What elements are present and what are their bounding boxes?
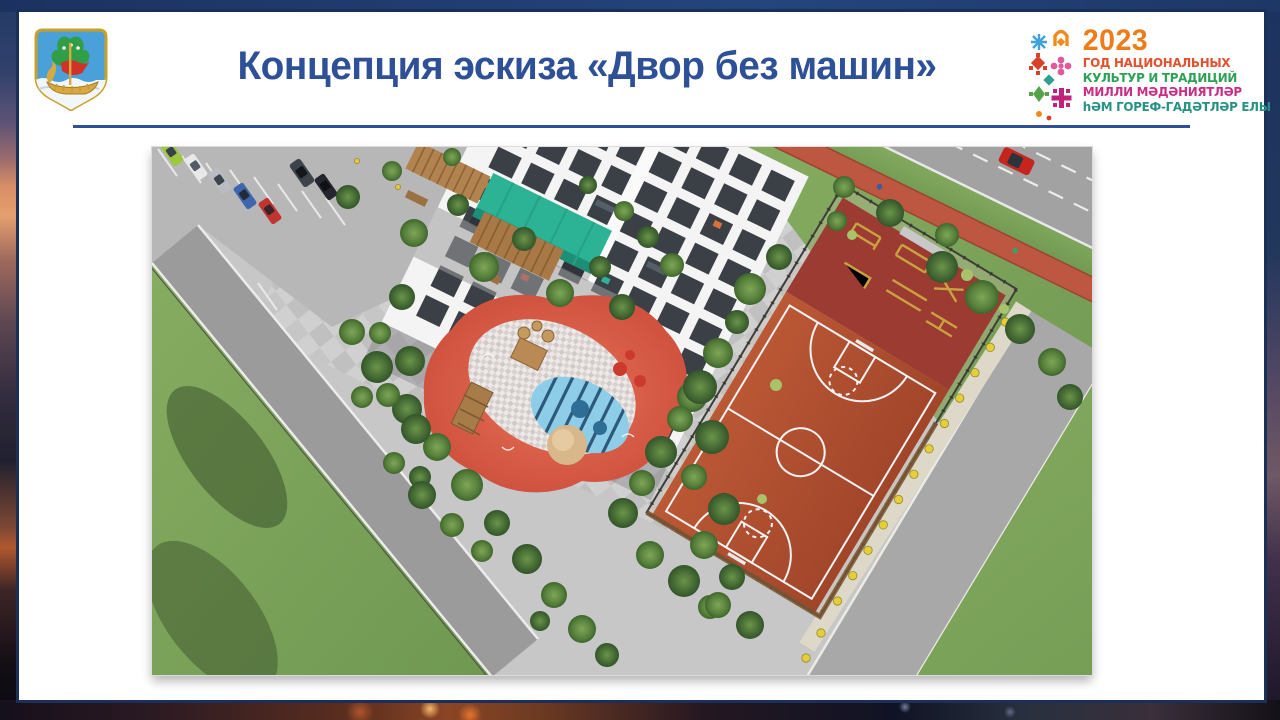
year-label: 2023 bbox=[1083, 26, 1271, 56]
ethnic-ornament-icon bbox=[1027, 26, 1079, 122]
background-photo-bottom bbox=[0, 700, 1280, 720]
slide-card: Концепция эскиза «Двор без машин» bbox=[16, 9, 1267, 703]
year-slogan-line: МИЛЛИ МӘДӘНИЯТЛӘР bbox=[1083, 85, 1271, 100]
year-slogan-line: ГОД НАЦИОНАЛЬНЫХ bbox=[1083, 56, 1271, 71]
year-slogan-lines: ГОД НАЦИОНАЛЬНЫХКУЛЬТУР И ТРАДИЦИЙМИЛЛИ … bbox=[1083, 56, 1271, 114]
year-slogan-line: һӘМ ГОРЕФ-ГАДӘТЛӘР ЕЛЫ bbox=[1083, 100, 1271, 115]
year-2023-logo: 2023 ГОД НАЦИОНАЛЬНЫХКУЛЬТУР И ТРАДИЦИЙМ… bbox=[1027, 26, 1253, 126]
city-coat-of-arms-icon bbox=[33, 27, 109, 113]
playground bbox=[424, 293, 687, 493]
slide-title: Концепция эскиза «Двор без машин» bbox=[102, 42, 1072, 90]
title-underline bbox=[73, 125, 1190, 128]
year-slogan-line: КУЛЬТУР И ТРАДИЦИЙ bbox=[1083, 71, 1271, 86]
presentation-slide-screenshot: Концепция эскиза «Двор без машин» bbox=[0, 0, 1280, 720]
courtyard-render-image bbox=[152, 147, 1092, 675]
